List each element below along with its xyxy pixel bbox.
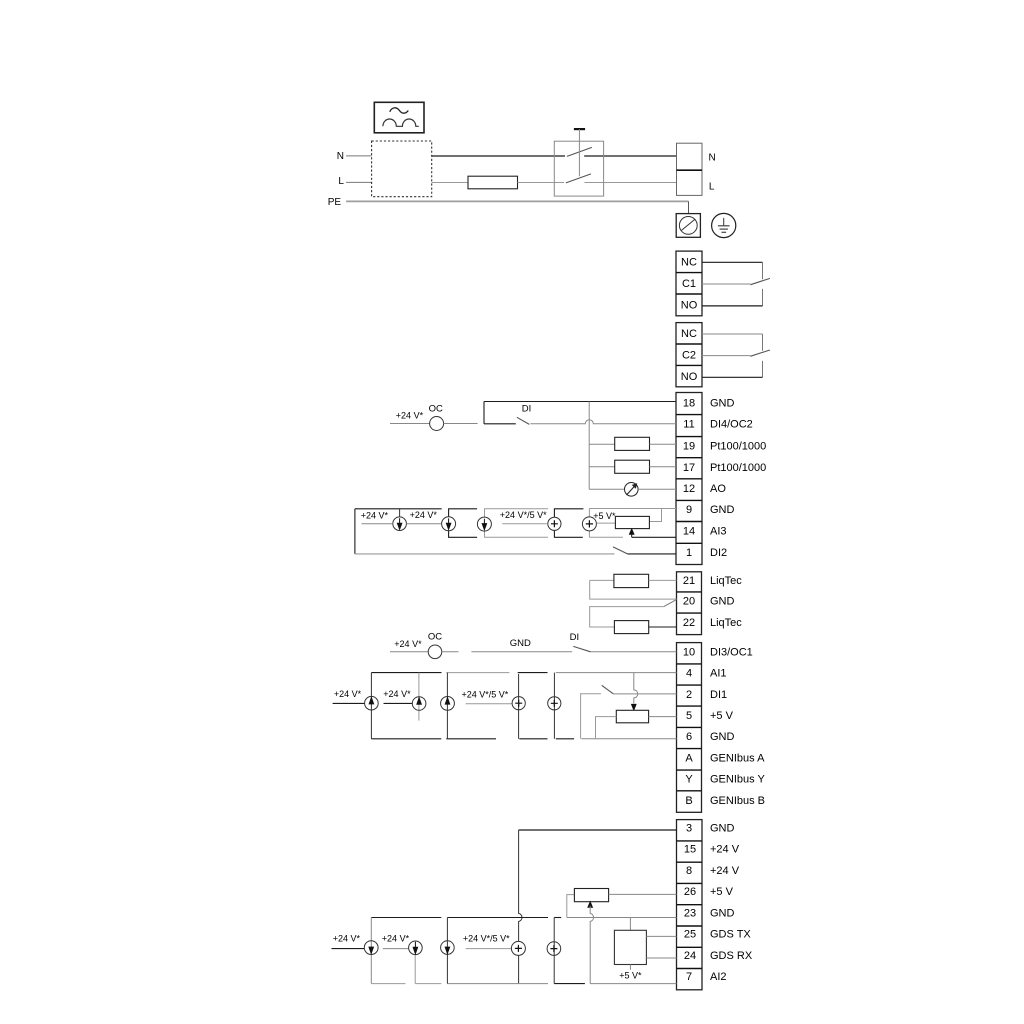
svg-text:AI3: AI3 [710, 526, 727, 538]
svg-text:GND: GND [710, 731, 735, 743]
svg-text:11: 11 [683, 418, 694, 430]
svg-text:3: 3 [686, 822, 692, 834]
svg-text:L: L [709, 181, 715, 192]
svg-text:DI: DI [522, 404, 532, 415]
svg-text:20: 20 [683, 596, 695, 608]
svg-text:AO: AO [710, 483, 726, 495]
svg-text:NC: NC [681, 328, 697, 340]
svg-text:25: 25 [684, 929, 696, 941]
svg-text:+24 V*: +24 V* [394, 639, 422, 649]
svg-text:5: 5 [686, 710, 692, 722]
svg-text:+24 V*: +24 V* [410, 510, 438, 520]
svg-text:NO: NO [681, 371, 698, 383]
svg-text:GND: GND [510, 638, 531, 649]
svg-text:14: 14 [683, 526, 695, 538]
svg-text:GENIbus B: GENIbus B [710, 795, 765, 807]
svg-text:C2: C2 [682, 350, 696, 362]
svg-text:N: N [337, 151, 344, 162]
svg-text:GND: GND [710, 397, 735, 409]
svg-text:24: 24 [684, 950, 696, 962]
svg-text:GENIbus A: GENIbus A [710, 753, 765, 765]
svg-text:6: 6 [686, 731, 692, 743]
svg-text:GDS RX: GDS RX [710, 950, 753, 962]
svg-text:PE: PE [328, 197, 342, 208]
svg-text:GND: GND [710, 822, 735, 834]
svg-text:+24 V: +24 V [710, 865, 740, 877]
svg-text:Pt100/1000: Pt100/1000 [710, 462, 766, 474]
svg-text:+5 V*: +5 V* [619, 971, 642, 981]
svg-text:17: 17 [683, 462, 695, 474]
svg-text:+24 V*/5 V*: +24 V*/5 V* [463, 933, 510, 943]
svg-text:+24 V*: +24 V* [333, 933, 361, 943]
svg-text:22: 22 [683, 617, 695, 629]
svg-text:+24 V*: +24 V* [334, 689, 362, 699]
svg-text:+5 V: +5 V [710, 710, 734, 722]
svg-text:+5 V: +5 V [710, 886, 734, 898]
svg-text:15: 15 [684, 844, 696, 856]
svg-text:GND: GND [710, 596, 735, 608]
svg-text:GENIbus Y: GENIbus Y [710, 774, 765, 786]
svg-text:DI3/OC1: DI3/OC1 [710, 647, 753, 659]
svg-text:Pt100/1000: Pt100/1000 [710, 441, 766, 453]
svg-text:DI2: DI2 [710, 547, 727, 559]
svg-text:+24 V*/5 V*: +24 V*/5 V* [500, 510, 547, 520]
svg-text:+24 V*: +24 V* [383, 689, 411, 699]
svg-text:7: 7 [686, 971, 692, 983]
svg-text:+24 V*: +24 V* [382, 933, 410, 943]
svg-text:10: 10 [683, 647, 695, 659]
svg-text:AI2: AI2 [710, 971, 727, 983]
svg-text:26: 26 [684, 886, 696, 898]
svg-text:1: 1 [686, 547, 692, 559]
svg-text:19: 19 [683, 441, 695, 453]
svg-text:12: 12 [683, 483, 695, 495]
svg-text:9: 9 [686, 504, 692, 516]
svg-text:+24 V*: +24 V* [396, 411, 424, 421]
svg-text:LiqTec: LiqTec [710, 617, 742, 629]
svg-text:DI: DI [570, 632, 580, 643]
svg-text:LiqTec: LiqTec [710, 575, 742, 587]
svg-text:NC: NC [681, 257, 697, 269]
svg-text:B: B [685, 795, 692, 807]
svg-text:+24 V*: +24 V* [361, 510, 389, 520]
svg-text:Y: Y [685, 774, 693, 786]
svg-text:+24 V: +24 V [710, 844, 740, 856]
svg-text:8: 8 [686, 865, 692, 877]
svg-text:OC: OC [429, 403, 443, 414]
svg-text:+24 V*/5 V*: +24 V*/5 V* [462, 689, 509, 699]
svg-text:GND: GND [710, 504, 735, 516]
svg-text:NO: NO [681, 300, 698, 312]
svg-text:18: 18 [683, 397, 695, 409]
svg-text:4: 4 [686, 668, 692, 680]
svg-text:21: 21 [683, 575, 695, 587]
svg-text:23: 23 [684, 907, 696, 919]
svg-text:AI1: AI1 [710, 668, 727, 680]
svg-text:2: 2 [686, 689, 692, 701]
svg-text:A: A [685, 753, 693, 765]
svg-text:DI1: DI1 [710, 689, 727, 701]
svg-text:GDS TX: GDS TX [710, 929, 751, 941]
svg-text:L: L [338, 176, 344, 187]
svg-text:N: N [709, 152, 716, 163]
svg-text:+5 V*: +5 V* [593, 511, 616, 521]
svg-text:GND: GND [710, 907, 735, 919]
svg-text:C1: C1 [682, 278, 696, 290]
svg-text:OC: OC [428, 632, 442, 643]
svg-text:DI4/OC2: DI4/OC2 [710, 418, 753, 430]
